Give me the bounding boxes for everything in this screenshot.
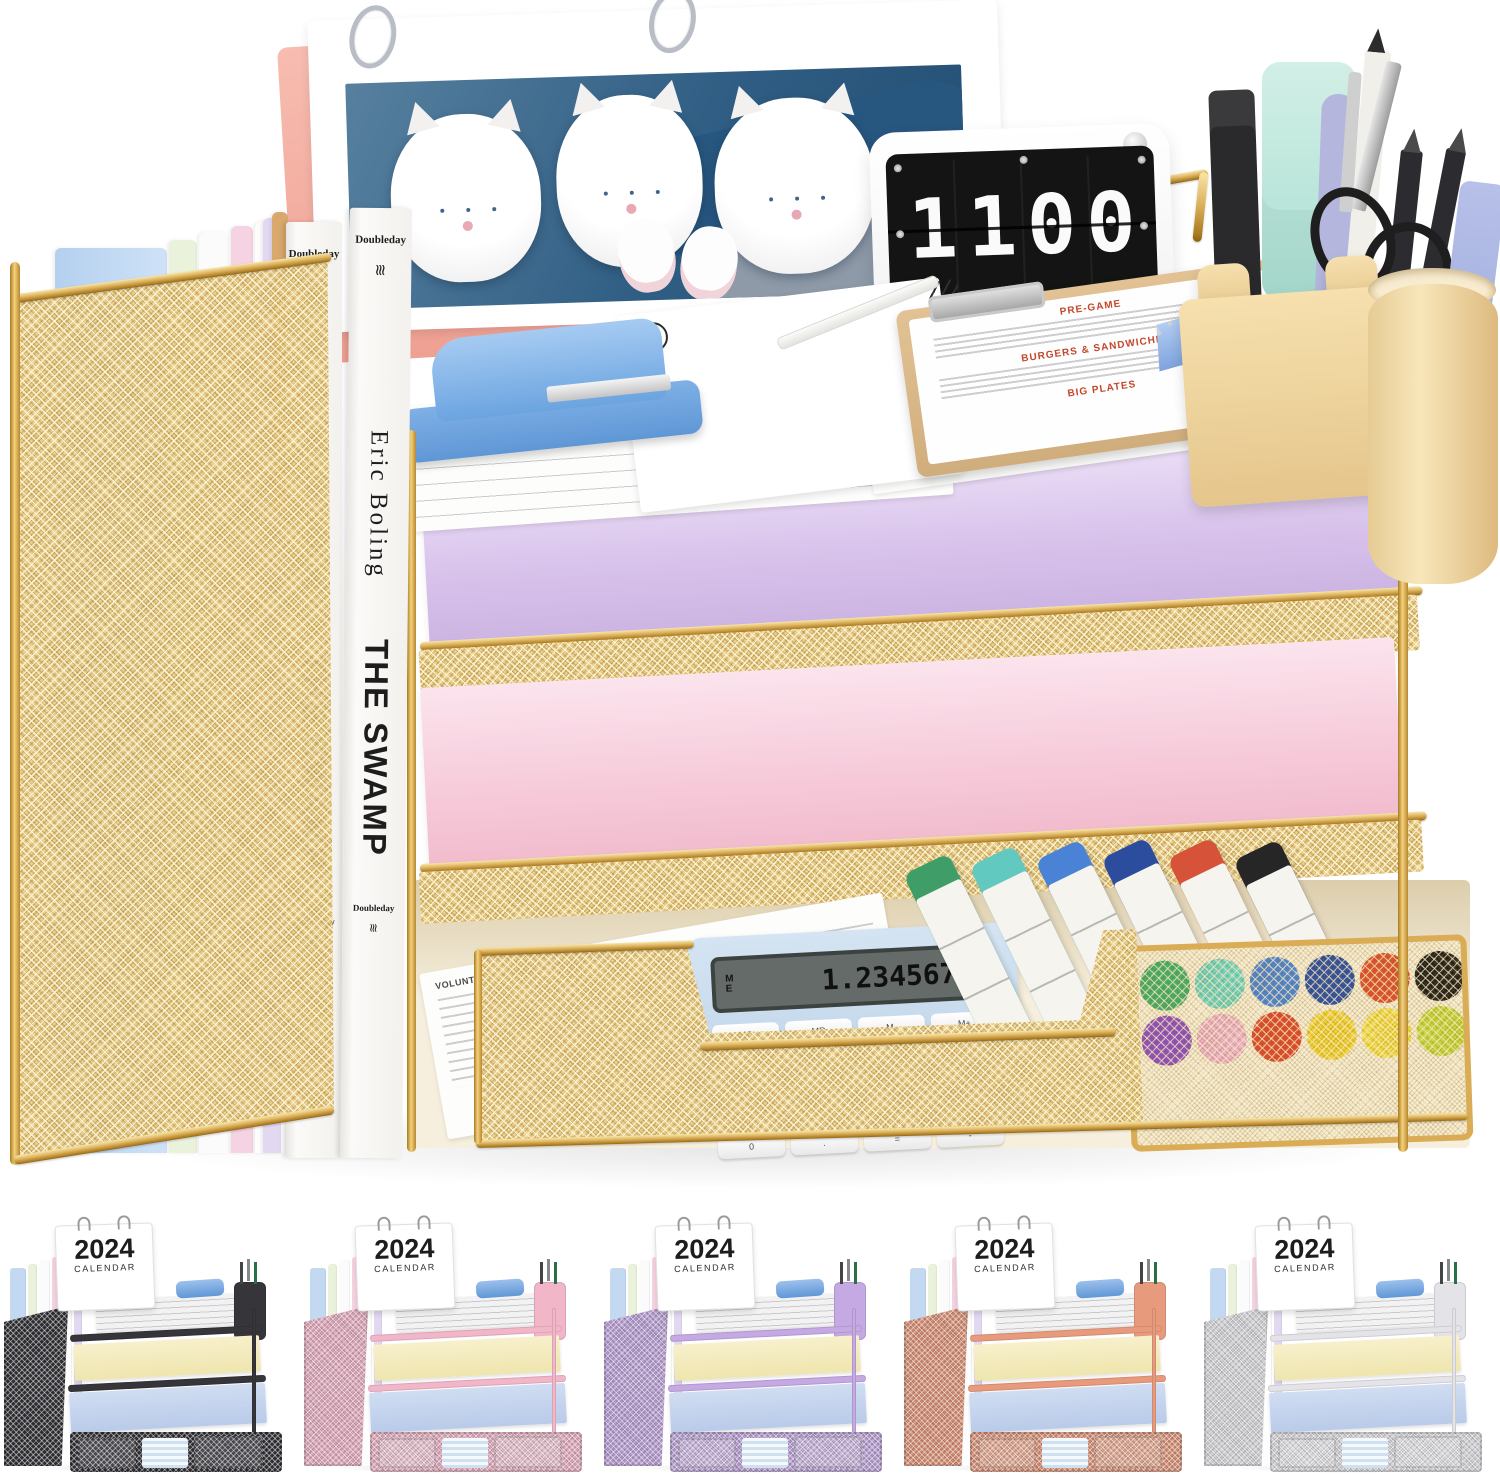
mini-calculator: [1342, 1438, 1388, 1468]
mini-stapler: [1375, 1278, 1424, 1298]
calendar-ring: [344, 1, 402, 73]
mini-calendar-year: 2024: [56, 1233, 153, 1264]
mini-yellow-paper: [73, 1335, 261, 1381]
mini-post: [252, 1308, 256, 1434]
mini-drawer-box: [1094, 1436, 1162, 1468]
mini-calendar-label: CALENDAR: [957, 1261, 1053, 1274]
mini-pens: [240, 1262, 243, 1284]
book-title: THE SWAMP: [355, 639, 395, 857]
mini-pens: [540, 1262, 543, 1284]
book-publisher: Doubleday: [353, 903, 395, 913]
variant-thumbnail-pink[interactable]: 2024 CALENDAR: [300, 1190, 600, 1475]
calendar-ring: [643, 0, 701, 58]
mini-magazine-mesh: [604, 1306, 668, 1466]
variant-thumbnail-rose-gold[interactable]: 2024 CALENDAR: [900, 1190, 1200, 1475]
mini-calculator: [1042, 1438, 1088, 1468]
mini-calendar: 2024 CALENDAR: [1255, 1222, 1356, 1311]
mini-pens: [1440, 1262, 1443, 1284]
mini-yellow-paper: [1273, 1335, 1461, 1381]
mini-drawer-box: [78, 1438, 136, 1468]
magazine-holder-mesh-panel: [14, 258, 334, 1164]
mini-drawer-box: [678, 1438, 736, 1468]
publisher-logo: ≋: [370, 263, 390, 277]
mini-stapler: [175, 1278, 224, 1298]
calculator-memory-indicator: ME: [725, 974, 738, 995]
mini-magazine-mesh: [304, 1306, 368, 1466]
mini-drawer-box: [978, 1438, 1036, 1468]
publisher-logo: ≋: [366, 923, 380, 933]
mini-stapler: [1075, 1278, 1124, 1298]
mini-drawer-box: [794, 1436, 862, 1468]
pencil-tip: [1403, 128, 1423, 154]
mini-calendar-year: 2024: [956, 1233, 1053, 1264]
mini-magazine-mesh: [1204, 1306, 1268, 1466]
mini-calculator: [442, 1438, 488, 1468]
book-spine: Doubleday ≋ Eric Boling THE SWAMP Double…: [340, 208, 412, 1159]
mini-post: [852, 1308, 856, 1434]
variant-row: 2024 CALENDAR 2024 CALENDAR: [0, 1190, 1500, 1475]
mini-calendar-label: CALENDAR: [57, 1261, 153, 1274]
book-author: Eric Boling: [363, 430, 393, 579]
calculator-readout: 1.2345678: [737, 955, 974, 1000]
mini-pens: [840, 1262, 843, 1284]
variant-thumbnail-black[interactable]: 2024 CALENDAR: [0, 1190, 300, 1475]
mini-calendar: 2024 CALENDAR: [55, 1222, 156, 1311]
mini-magazine-mesh: [4, 1306, 68, 1466]
mini-yellow-paper: [973, 1335, 1161, 1381]
pencil-tip: [1367, 28, 1387, 53]
mini-calendar-year: 2024: [356, 1233, 453, 1264]
mini-calendar-label: CALENDAR: [657, 1261, 753, 1274]
mini-yellow-paper: [673, 1335, 861, 1381]
variant-thumbnail-purple[interactable]: 2024 CALENDAR: [600, 1190, 900, 1475]
mini-pens: [1140, 1262, 1143, 1284]
mini-calendar-label: CALENDAR: [1257, 1261, 1353, 1274]
kitten-face: [795, 196, 799, 200]
kitten-face: [466, 208, 470, 212]
mini-post: [1452, 1308, 1456, 1434]
drawer-wire-left: [474, 950, 482, 1144]
mini-stapler: [475, 1278, 524, 1298]
mini-calendar-year: 2024: [656, 1233, 753, 1264]
mini-calculator: [742, 1438, 788, 1468]
book-publisher: Doubleday: [355, 234, 406, 247]
magazine-holder-wire-left: [10, 262, 20, 1165]
mini-stapler: [775, 1278, 824, 1298]
kitten-face: [630, 191, 634, 195]
mini-calendar: 2024 CALENDAR: [355, 1222, 456, 1311]
mini-calendar-year: 2024: [1256, 1233, 1353, 1264]
mini-calendar: 2024 CALENDAR: [955, 1222, 1056, 1311]
mini-post: [552, 1308, 556, 1434]
mini-drawer-box: [494, 1436, 562, 1468]
mini-calculator: [142, 1438, 188, 1468]
product-photo: 1100 LETTER PRE-GAME BURGERS & SANDWIC: [0, 0, 1500, 1475]
mini-magazine-mesh: [904, 1306, 968, 1466]
mini-post: [1152, 1308, 1156, 1434]
pen-cup-cylinder: [1368, 284, 1498, 584]
mini-drawer-box: [194, 1436, 262, 1468]
variant-thumbnail-white[interactable]: 2024 CALENDAR: [1200, 1190, 1500, 1475]
pencil-tip: [1448, 126, 1470, 153]
mini-drawer-box: [1394, 1436, 1462, 1468]
mini-drawer-box: [378, 1438, 436, 1468]
mini-yellow-paper: [373, 1335, 561, 1381]
mini-calendar: 2024 CALENDAR: [655, 1222, 756, 1311]
mini-drawer-box: [1278, 1438, 1336, 1468]
top-back-rail-corner: [1192, 172, 1208, 243]
kitten: [388, 112, 543, 285]
mini-calendar-label: CALENDAR: [357, 1261, 453, 1274]
